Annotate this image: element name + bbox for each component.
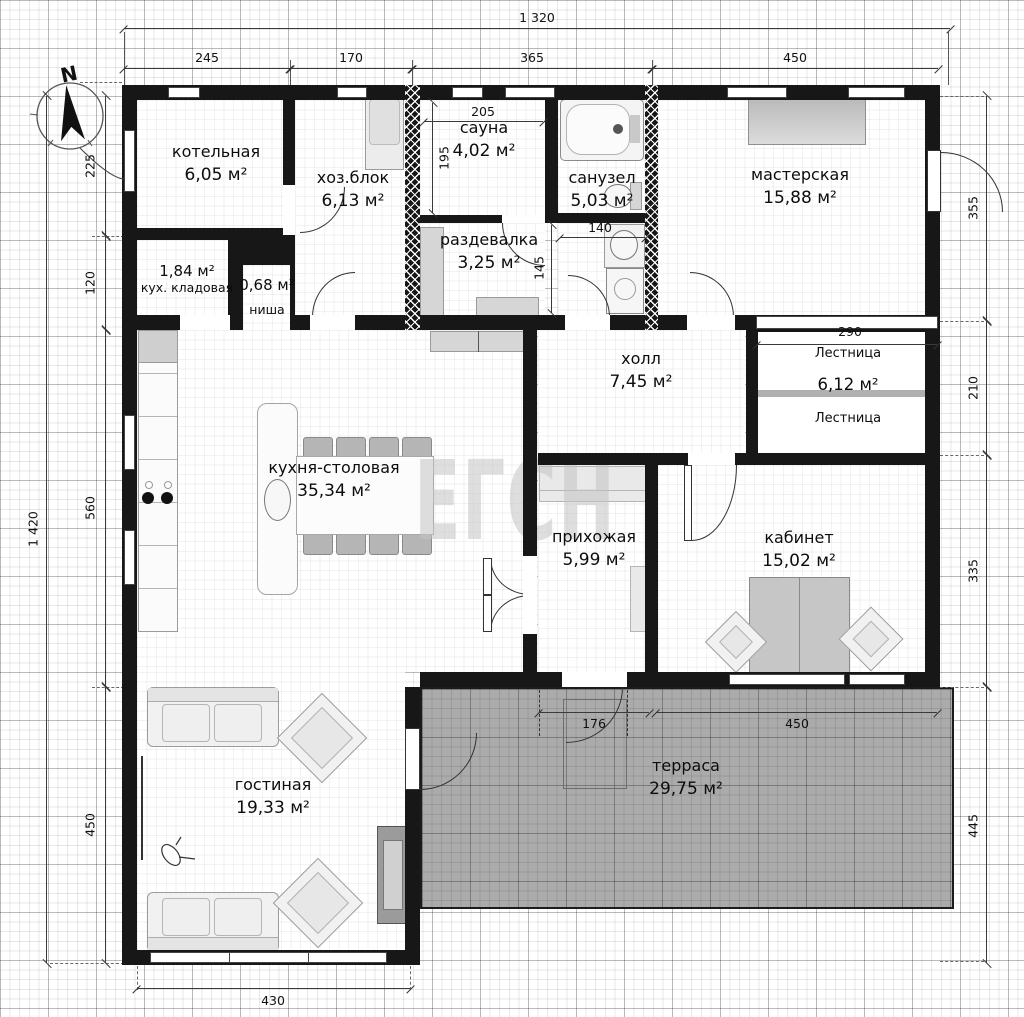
window (727, 87, 787, 98)
dim-line-right-4 (986, 687, 987, 963)
dim-line-sauna-h (432, 103, 433, 213)
window (505, 87, 555, 98)
doorway (523, 556, 537, 634)
wall-band (137, 315, 180, 330)
dim-razdevalka: 145 (532, 256, 547, 280)
dim-top-4: 450 (783, 50, 807, 65)
dim-bottom: 430 (261, 993, 285, 1008)
wall-prihozhaya-kabinet (645, 465, 658, 687)
dim-right-4: 445 (966, 814, 981, 838)
wall-band (355, 315, 565, 330)
window (848, 87, 905, 98)
doorway (310, 315, 355, 330)
label-stairs-lower: Лестница (815, 411, 881, 426)
label-stairs-upper: Лестница (815, 346, 881, 361)
label-gostinaya: гостиная 19,33 м² (235, 775, 312, 819)
dim-line-left-2 (105, 236, 106, 330)
dim-line-top-2 (290, 68, 412, 69)
dim-line-wc-w (560, 237, 645, 238)
window (849, 674, 905, 685)
dim-top-total: 1 320 (519, 10, 555, 25)
label-sanuzel: санузел 5,03 м² (568, 168, 635, 212)
dim-line-right-3 (986, 455, 987, 687)
dim-terrace-r: 450 (785, 716, 809, 731)
dim-sauna-h: 195 (437, 146, 452, 170)
label-razdevalka: раздевалка 3,25 м² (440, 230, 538, 274)
label-nisha: 0,68 м² ниша (239, 276, 295, 317)
dim-left-4: 450 (83, 813, 98, 837)
workbench (748, 96, 866, 145)
doorway (687, 315, 735, 330)
wall-hatched (405, 85, 420, 330)
dim-line-left-4 (105, 687, 106, 963)
kitchen-cabinet (430, 331, 532, 352)
dim-terrace-l: 176 (582, 716, 606, 731)
dim-left-total: 1 420 (26, 511, 41, 547)
kitchen-sink-cabinet (138, 330, 178, 363)
wall-holl-bottom (735, 453, 940, 465)
dim-line-left-1 (105, 96, 106, 236)
wall-kitchen-holl (523, 330, 537, 556)
floor-plan: ЕГСН (0, 0, 1024, 1017)
doorway (180, 315, 230, 330)
doorway (565, 315, 610, 330)
label-prihozhaya: прихожая 5,99 м² (552, 527, 636, 571)
washer-door (614, 278, 636, 300)
fireplace-inner (383, 840, 403, 910)
dim-wc-w: 140 (588, 220, 612, 235)
water-heater-top (369, 99, 400, 145)
dim-right-1: 355 (966, 196, 981, 220)
window (729, 674, 845, 685)
doorway (283, 185, 295, 235)
dim-line-bottom (137, 988, 410, 989)
dim-left-1: 225 (83, 154, 98, 178)
dim-line-top-1 (124, 68, 290, 69)
dim-line-left-total (46, 96, 47, 963)
dim-right-3: 335 (966, 559, 981, 583)
wall-band (230, 315, 243, 330)
wall-kotelnaya-bottom (137, 228, 295, 240)
dim-top-2: 170 (339, 50, 363, 65)
floor-lamp-icon (155, 833, 199, 877)
label-sauna: сауна 4,02 м² (453, 118, 516, 162)
door-leaf (927, 150, 941, 212)
dim-line-top-total (124, 28, 950, 29)
dim-top-3: 365 (520, 50, 544, 65)
window (124, 415, 135, 470)
bathtub-drain (613, 124, 623, 134)
dim-left-2: 120 (83, 271, 98, 295)
wall-kotelnaya-hozblok (283, 100, 295, 185)
dim-stairs-w: 290 (838, 324, 862, 339)
dim-line-razdevalka (551, 225, 552, 313)
bench (476, 297, 539, 316)
label-kotelnaya: котельная 6,05 м² (172, 142, 260, 186)
dim-line-top-3 (412, 68, 652, 69)
wall-sauna-bottom (420, 215, 502, 223)
dim-line-terrace-r (656, 712, 937, 713)
dim-line-right-1 (986, 96, 987, 321)
label-kladovaya: 1,84 м² кух. кладовая (141, 262, 233, 295)
dim-line-sauna-w (424, 121, 543, 122)
label-kabinet: кабинет 15,02 м² (762, 528, 836, 572)
dim-left-3: 560 (83, 496, 98, 520)
north-compass: N (18, 64, 178, 189)
dim-right-2: 210 (966, 376, 981, 400)
window (337, 87, 367, 98)
window (452, 87, 483, 98)
label-holl: холл 7,45 м² (610, 349, 673, 393)
dim-sauna-w: 205 (471, 104, 495, 119)
sofa (147, 687, 279, 747)
doorway (502, 215, 545, 223)
window (150, 952, 387, 963)
door-leaf (405, 728, 420, 790)
kitchen-counter (138, 330, 178, 632)
door-leaf (684, 465, 692, 541)
label-kuhnya: кухня-столовая 35,34 м² (268, 458, 399, 502)
doorway (562, 672, 627, 687)
dim-line-right-2 (986, 321, 987, 455)
door-leaf (483, 595, 492, 632)
bath-faucet (630, 115, 640, 143)
label-masterskaya: мастерская 15,88 м² (751, 165, 849, 209)
door-leaf (483, 558, 492, 595)
dim-top-1: 245 (195, 50, 219, 65)
window (124, 530, 135, 585)
wall-holl-bottom (538, 453, 688, 465)
wall-left (122, 85, 137, 965)
dim-line-left-3 (105, 330, 106, 687)
dim-line-stairs-w (757, 344, 937, 345)
label-terrasa: терраса 29,75 м² (649, 756, 723, 800)
dim-line-top-4 (652, 68, 938, 69)
dim-line-terrace-l (539, 712, 649, 713)
wall-band (290, 315, 310, 330)
label-stairs-area: 6,12 м² (817, 375, 878, 394)
sofa (147, 892, 279, 952)
doorway (688, 453, 735, 465)
label-hozblok: хоз.блок 6,13 м² (317, 168, 389, 212)
wall-kitchen-holl (523, 634, 537, 680)
wc-sink (610, 230, 638, 260)
wall-hatched (645, 85, 658, 330)
